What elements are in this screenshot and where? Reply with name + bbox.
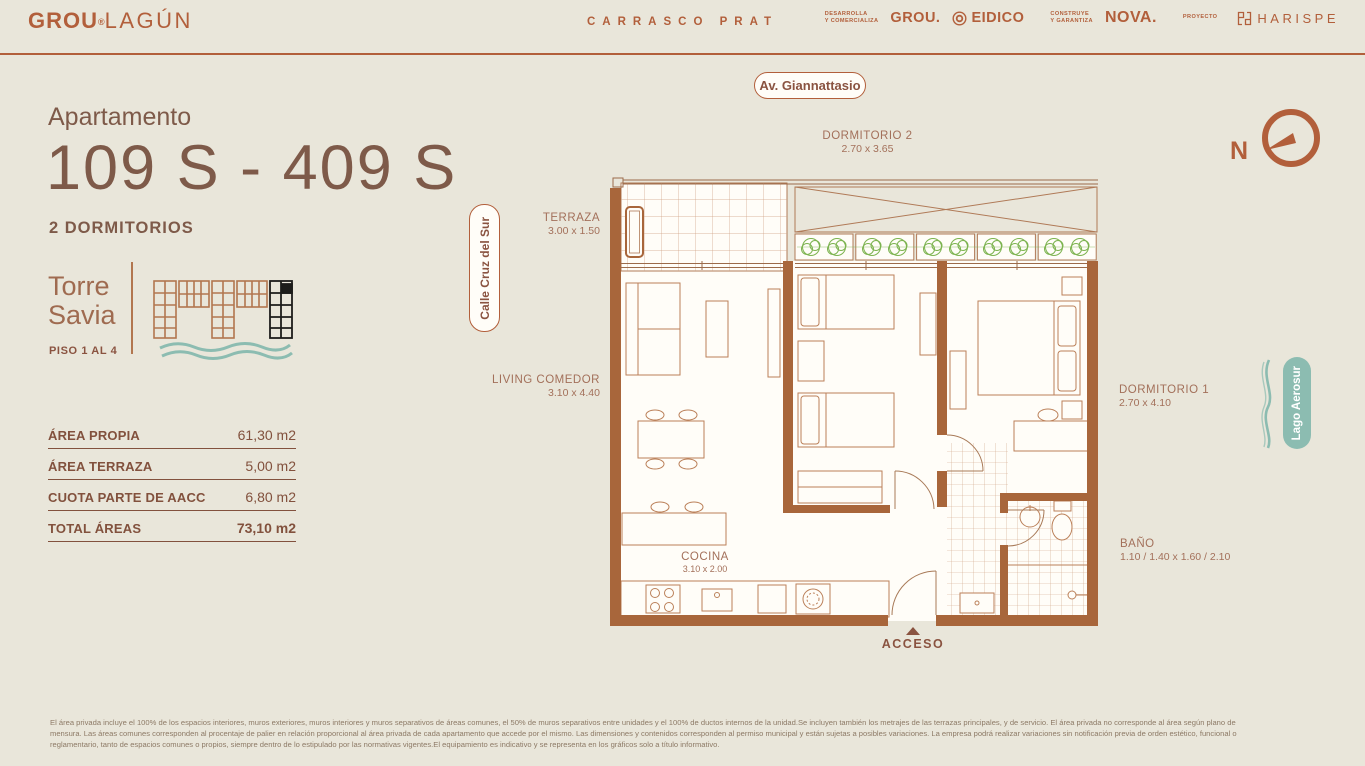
area-table: ÁREA PROPIA 61,30 m2 ÁREA TERRAZA 5,00 m… bbox=[48, 418, 296, 542]
planters bbox=[795, 234, 1096, 260]
partner-logos: DESARROLLA Y COMERCIALIZA GROU. EIDICO C… bbox=[825, 9, 1339, 27]
compass-needle-icon bbox=[1266, 133, 1296, 150]
eidico-logo: EIDICO bbox=[971, 10, 1024, 26]
access-arrow-icon bbox=[906, 627, 920, 635]
north-letter: N bbox=[1230, 137, 1248, 166]
kitchen-counter bbox=[621, 581, 889, 617]
developer-role-label: DESARROLLA Y COMERCIALIZA bbox=[825, 11, 879, 26]
nova-logo: NOVA. bbox=[1105, 9, 1157, 27]
street-label-cruz-del-sur: Calle Cruz del Sur bbox=[469, 204, 500, 332]
pergola-box bbox=[795, 187, 1097, 232]
north-indicator: N bbox=[1228, 105, 1324, 176]
hall-cabinet bbox=[960, 593, 994, 613]
room-label-living: LIVING COMEDOR3.10 x 4.40 bbox=[460, 373, 600, 401]
hall-floor bbox=[947, 443, 1008, 615]
builder-role-label: CONSTRUYE Y GARANTIZA bbox=[1050, 11, 1093, 26]
unit-type-label: Apartamento bbox=[48, 103, 191, 132]
eidico-icon bbox=[952, 11, 967, 26]
brochure-page: GROU®LAGÚN CARRASCO PRAT DESARROLLA Y CO… bbox=[0, 0, 1365, 766]
tv-unit bbox=[768, 289, 780, 377]
room-label-dormitorio2: DORMITORIO 22.70 x 3.65 bbox=[800, 129, 935, 157]
room-label-dormitorio1: DORMITORIO 12.70 x 4.10 bbox=[1119, 383, 1279, 411]
highlighted-building bbox=[270, 281, 292, 338]
tower-divider bbox=[131, 262, 133, 354]
table-row: CUOTA PARTE DE AACC 6,80 m2 bbox=[48, 480, 296, 511]
brown-buildings bbox=[154, 281, 267, 338]
legal-disclaimer: El área privada incluye el 100% de los e… bbox=[50, 717, 1263, 751]
table-row: ÁREA TERRAZA 5,00 m2 bbox=[48, 449, 296, 480]
harispe-icon bbox=[1237, 11, 1252, 26]
street-label-giannattasio: Av. Giannattasio bbox=[754, 72, 866, 99]
header-divider bbox=[0, 53, 1365, 55]
table-row-total: TOTAL ÁREAS 73,10 m2 bbox=[48, 511, 296, 542]
unit-number: 109 S - 409 S bbox=[46, 132, 457, 204]
unit-bedrooms: 2 DORMITORIOS bbox=[49, 219, 194, 238]
site-map-icon bbox=[146, 276, 306, 369]
tower-floors: PISO 1 AL 4 bbox=[49, 345, 117, 357]
room-label-cocina: COCINA3.10 x 2.00 bbox=[655, 550, 755, 576]
sofa bbox=[626, 283, 680, 375]
tower-name: Torre Savia bbox=[48, 272, 116, 329]
water-waves bbox=[160, 344, 292, 359]
harispe-logo: HARISPE bbox=[1257, 11, 1339, 26]
project-role-label: PROYECTO bbox=[1183, 14, 1218, 21]
access-marker: ACCESO bbox=[867, 627, 959, 651]
coffee-table bbox=[706, 301, 728, 357]
lake-label-aerosur: Lago Aerosur bbox=[1283, 357, 1311, 449]
terrace bbox=[621, 183, 787, 271]
room-label-terraza: TERRAZA3.00 x 1.50 bbox=[500, 211, 600, 239]
room-label-bano: BAÑO1.10 / 1.40 x 1.60 / 2.10 bbox=[1120, 537, 1290, 565]
table-row: ÁREA PROPIA 61,30 m2 bbox=[48, 418, 296, 449]
grou-logo: GROU. bbox=[890, 10, 940, 26]
